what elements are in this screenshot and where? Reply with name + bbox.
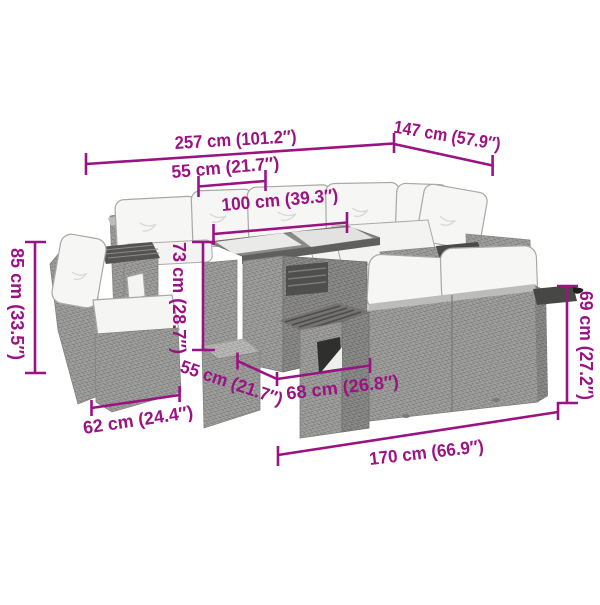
svg-text:85 cm (33.5″): 85 cm (33.5″) — [7, 248, 27, 360]
svg-text:69 cm (27.2″): 69 cm (27.2″) — [576, 291, 596, 400]
svg-text:73 cm (28.7″): 73 cm (28.7″) — [169, 242, 189, 354]
